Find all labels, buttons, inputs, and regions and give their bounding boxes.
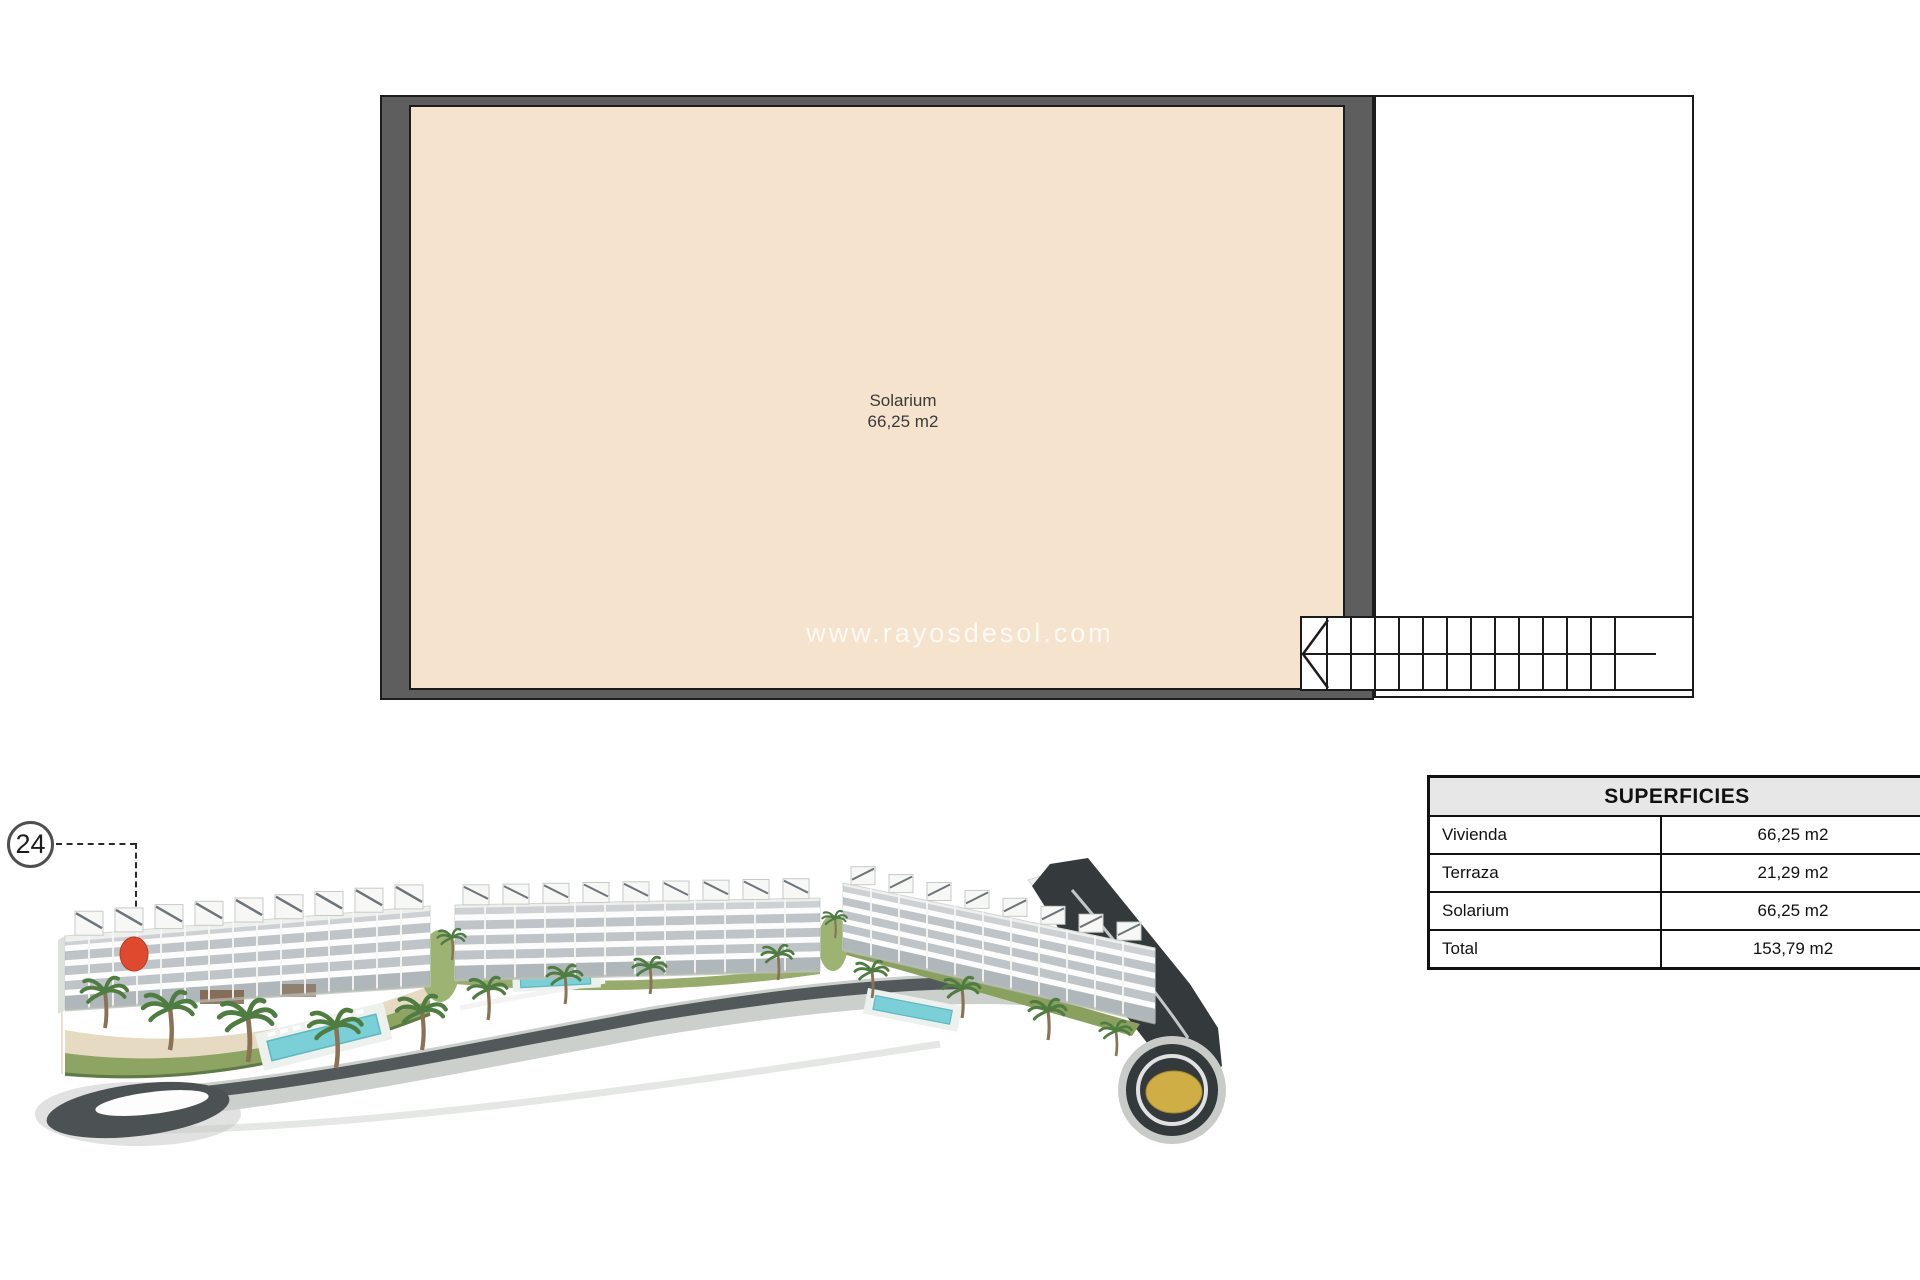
adjacent-roof-outline <box>1374 95 1694 698</box>
page: Solarium 66,25 m2 www.rayosdesol.com 24 <box>0 0 1920 1280</box>
row-label: Terraza <box>1430 855 1662 891</box>
apartment-block-1 <box>58 885 430 1014</box>
watermark: www.rayosdesol.com <box>660 618 1260 649</box>
row-label: Vivienda <box>1430 817 1662 853</box>
row-label: Solarium <box>1430 893 1662 929</box>
row-value: 66,25 m2 <box>1662 817 1920 853</box>
room-name: Solarium <box>803 390 1003 411</box>
roundabout <box>1118 1036 1226 1144</box>
unit-24-marker <box>120 937 148 971</box>
row-label: Total <box>1430 931 1662 967</box>
table-row: Terraza 21,29 m2 <box>1430 855 1920 893</box>
room-area: 66,25 m2 <box>803 411 1003 432</box>
table-row: Total 153,79 m2 <box>1430 931 1920 967</box>
row-value: 66,25 m2 <box>1662 893 1920 929</box>
staircase-diagram <box>1300 616 1694 692</box>
complex-3d-render <box>20 838 1365 1150</box>
row-value: 153,79 m2 <box>1662 931 1920 967</box>
table-row: Vivienda 66,25 m2 <box>1430 817 1920 855</box>
superficies-table: SUPERFICIES Vivienda 66,25 m2 Terraza 21… <box>1427 775 1920 970</box>
row-value: 21,29 m2 <box>1662 855 1920 891</box>
table-title: SUPERFICIES <box>1430 778 1920 817</box>
room-label: Solarium 66,25 m2 <box>803 390 1003 432</box>
table-row: Solarium 66,25 m2 <box>1430 893 1920 931</box>
